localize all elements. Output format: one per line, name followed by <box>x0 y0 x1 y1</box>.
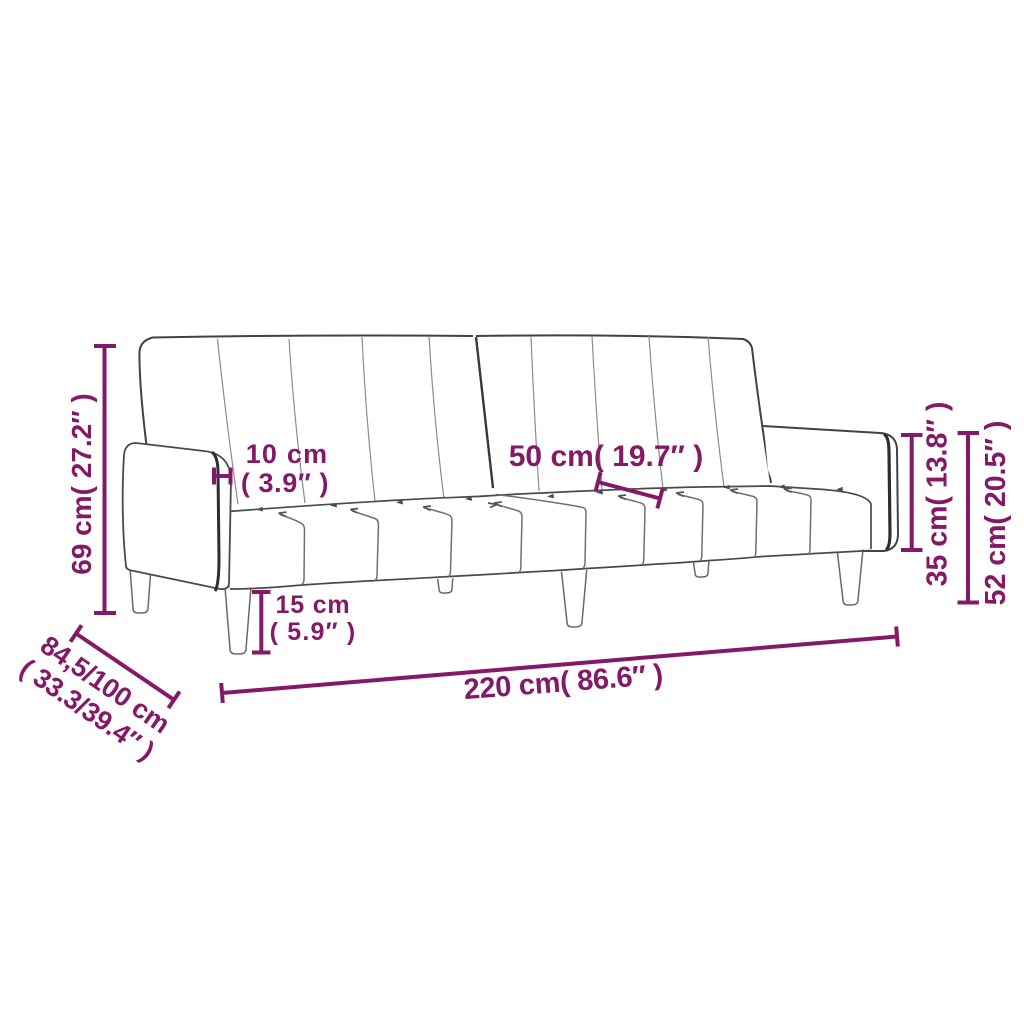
svg-text:10 cm: 10 cm <box>246 439 329 469</box>
svg-text:69 cm( 27.2″ ): 69 cm( 27.2″ ) <box>66 393 97 575</box>
svg-text:( 3.9″ ): ( 3.9″ ) <box>241 468 329 498</box>
svg-text:15 cm: 15 cm <box>276 591 351 619</box>
svg-text:50 cm( 19.7″ ): 50 cm( 19.7″ ) <box>509 440 703 473</box>
svg-text:35 cm( 13.8″ ): 35 cm( 13.8″ ) <box>922 402 954 587</box>
svg-text:( 5.9″ ): ( 5.9″ ) <box>270 618 357 646</box>
svg-text:52 cm( 20.5″ ): 52 cm( 20.5″ ) <box>980 421 1012 606</box>
